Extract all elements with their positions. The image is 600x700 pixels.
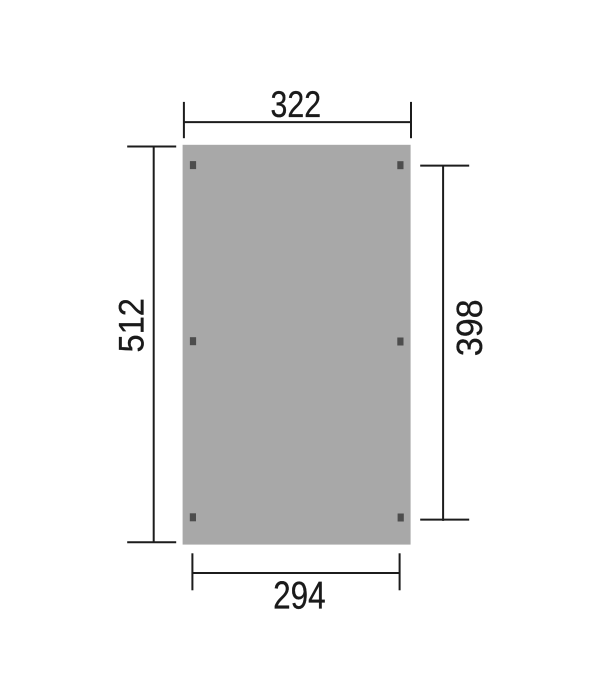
svg-text:294: 294 [273, 574, 326, 617]
svg-text:398: 398 [450, 299, 490, 356]
svg-text:512: 512 [112, 298, 151, 353]
svg-text:322: 322 [271, 83, 322, 125]
